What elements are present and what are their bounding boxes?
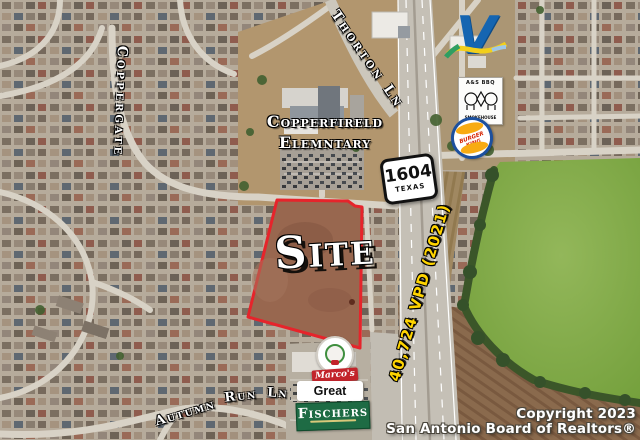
great-clips-logo: Great Clips (297, 381, 363, 401)
valero-swoosh-icon (444, 14, 510, 78)
copyright-line2: San Antonio Board of Realtors® (386, 422, 636, 438)
highway-1604-shield: 1604 TEXAS (379, 152, 439, 205)
bbq-animals-icon (461, 86, 501, 112)
run-word: Run (223, 387, 257, 406)
school-label: Copperfireld Elemntary (240, 112, 410, 154)
ln-word: Ln (266, 385, 288, 401)
fischers-text: Fischers (297, 402, 370, 425)
fischers-logo: Fischers (296, 401, 371, 432)
aerial-site-map: Thorton Ln Coppergate Autumn Run Ln Copp… (0, 0, 640, 440)
shield-number: 1604 (384, 163, 433, 186)
school-label-line2: Elemntary (240, 133, 410, 154)
site-label: Site (251, 222, 399, 281)
copyright-notice: Copyright 2023 San Antonio Board of Real… (386, 407, 636, 438)
school-label-line1: Copperfireld (240, 112, 410, 133)
valero-logo: V (444, 14, 510, 78)
marcos-accent (331, 360, 339, 365)
